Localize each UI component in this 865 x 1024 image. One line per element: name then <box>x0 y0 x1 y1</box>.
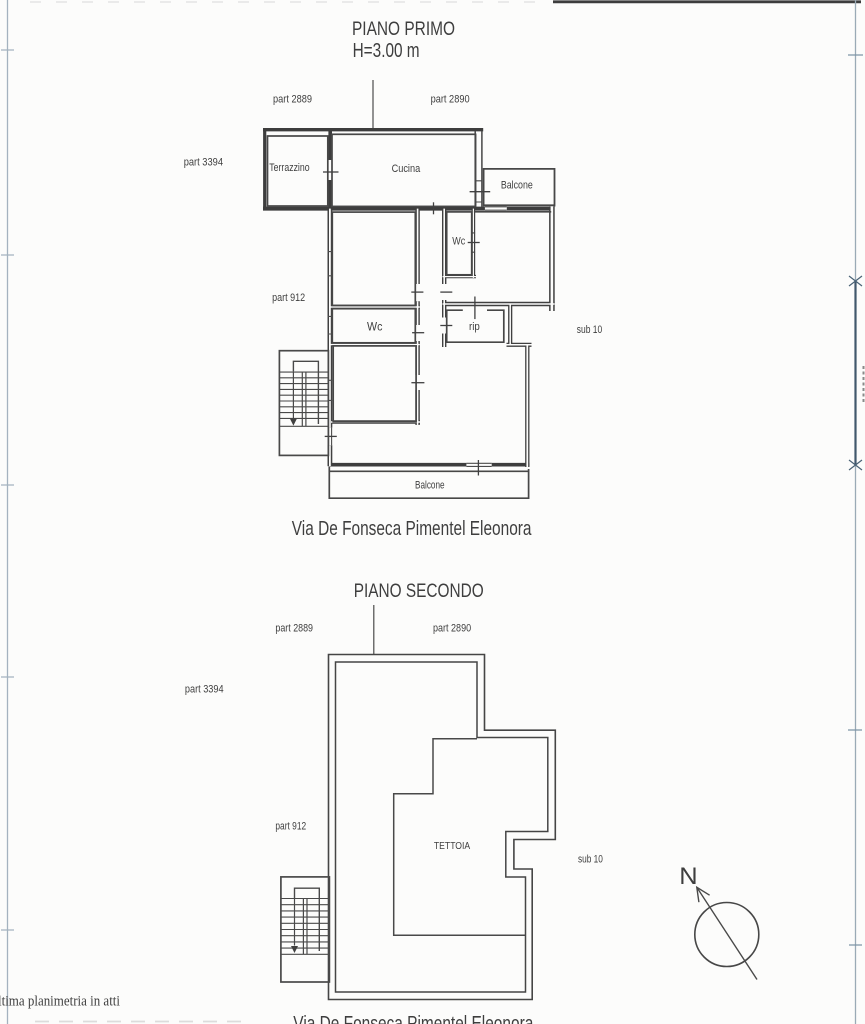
svg-text:Cucina: Cucina <box>392 163 421 175</box>
svg-text:PIANO PRIMO: PIANO PRIMO <box>352 19 455 40</box>
svg-text:part 3394: part 3394 <box>184 157 223 169</box>
svg-text:Balcone: Balcone <box>415 479 445 491</box>
svg-text:Terrazzino: Terrazzino <box>269 162 309 174</box>
svg-text:Via De Fonseca Pimentel Eleono: Via De Fonseca Pimentel Eleonora <box>293 1013 534 1024</box>
svg-text:part 912: part 912 <box>272 292 305 304</box>
svg-text:rip: rip <box>469 321 480 333</box>
svg-text:ltima planimetria in atti: ltima planimetria in atti <box>0 994 120 1010</box>
svg-text:part 2889: part 2889 <box>273 94 312 106</box>
svg-text:Via De Fonseca Pimentel Eleono: Via De Fonseca Pimentel Eleonora <box>292 518 532 540</box>
svg-text:part 3394: part 3394 <box>185 683 224 695</box>
svg-text:Wc: Wc <box>367 322 383 334</box>
svg-text:part 2890: part 2890 <box>433 623 471 635</box>
svg-text:sub 10: sub 10 <box>578 853 603 865</box>
svg-text:Wc: Wc <box>452 236 465 248</box>
svg-text:sub 10: sub 10 <box>577 324 602 336</box>
svg-text:TETTOIA: TETTOIA <box>434 840 470 852</box>
svg-text:part 2889: part 2889 <box>275 623 313 635</box>
svg-text:N: N <box>679 863 697 889</box>
svg-text:H=3.00 m: H=3.00 m <box>353 40 420 62</box>
svg-text:PIANO SECONDO: PIANO SECONDO <box>354 581 484 602</box>
svg-text:part 2890: part 2890 <box>431 94 470 106</box>
svg-text:Balcone: Balcone <box>501 179 533 191</box>
svg-text:part 912: part 912 <box>275 820 306 832</box>
